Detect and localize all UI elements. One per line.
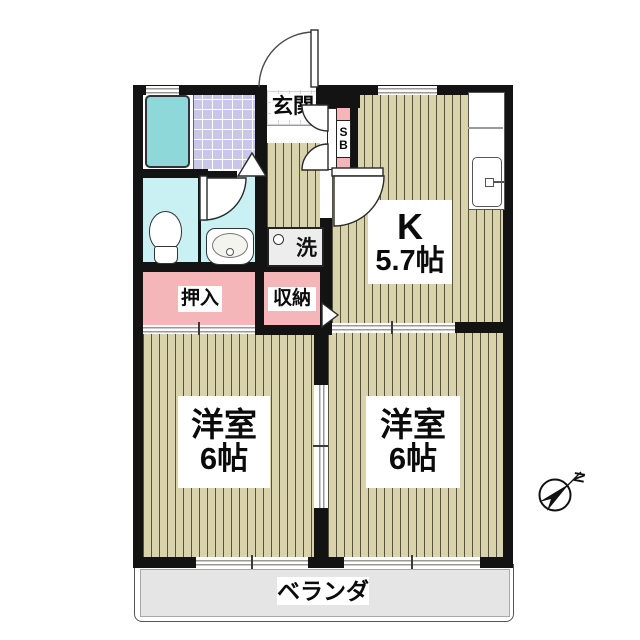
storage-label: 収納 [268, 287, 316, 311]
western-room-left-size: 6帖 [200, 443, 248, 476]
wall-partition-top-stub [314, 327, 328, 385]
entrance-label: 玄関 [271, 94, 315, 120]
bath-window [146, 86, 179, 95]
tick-window-left [251, 555, 253, 569]
storage-label-text: 収納 [273, 289, 311, 309]
tick-kitchen-slide [391, 321, 393, 334]
compass-needle [539, 484, 569, 511]
kitchen-room-sliding-door [332, 323, 455, 332]
kitchen-size: 5.7帖 [375, 246, 444, 276]
kitchen-faucet-handle [485, 178, 494, 187]
shoe-box-label-b: B [339, 139, 348, 152]
western-room-right-size: 6帖 [389, 443, 437, 476]
laundry-label: 洗 [296, 232, 317, 262]
compass-circle [540, 480, 571, 511]
hallway-floor [267, 142, 320, 228]
toilet-bowl [149, 211, 182, 251]
veranda-label: ベランダ [277, 577, 369, 605]
kitchen-counter-divider [468, 127, 503, 129]
kitchen-window [378, 86, 437, 95]
compass-needle-line [566, 472, 581, 487]
wall-bottom-left [133, 557, 196, 568]
laundry-faucet-icon [273, 234, 284, 245]
tick-partition-slide [313, 445, 328, 447]
entrance-step [267, 125, 320, 143]
kitchen-label: K 5.7帖 [368, 200, 452, 284]
toilet-base [154, 246, 178, 264]
tick-oshiire-slide [198, 322, 200, 335]
wall-bottom-center [308, 557, 344, 568]
closet-label: 押入 [178, 286, 222, 312]
wall-left [133, 85, 143, 568]
front-door-arc [259, 32, 314, 87]
kitchen-name: K [397, 208, 423, 246]
wall-kitchen-south-right [455, 322, 503, 333]
wall-bottom-right [480, 557, 513, 568]
entrance-label-text: 玄関 [272, 96, 314, 118]
bathroom-tile-floor [192, 90, 255, 170]
veranda-label-text: ベランダ [277, 579, 369, 603]
closet-label-text: 押入 [181, 289, 219, 309]
wall-washroom-north [208, 171, 237, 178]
western-room-right-name: 洋室 [380, 408, 446, 443]
western-room-left-label: 洋室 6帖 [178, 396, 270, 488]
western-room-left-name: 洋室 [191, 408, 257, 443]
compass: N [539, 470, 588, 511]
wall-partition-bottom-stub [314, 508, 328, 557]
washbasin-drain [226, 248, 234, 256]
floorplan-canvas: 洗 玄関 S B K 5.7帖 押入 収納 洋室 6帖 洋室 6帖 ベランダ [0, 0, 640, 640]
shoe-box-label: S B [336, 120, 351, 158]
wall-hall-west [255, 85, 267, 267]
compass-north-label: N [569, 470, 588, 484]
laundry-pan: 洗 [267, 227, 324, 267]
bathtub [145, 95, 190, 168]
wall-toilet-divider [198, 175, 201, 262]
wall-entrance-block [316, 85, 360, 108]
tick-window-right [411, 555, 413, 569]
wall-bath-south [133, 169, 208, 178]
wall-oshiire-shuno-divider [255, 270, 264, 327]
wall-shoebox-east [350, 108, 358, 170]
western-room-right-label: 洋室 6帖 [366, 396, 460, 488]
front-door-leaf [311, 30, 318, 87]
